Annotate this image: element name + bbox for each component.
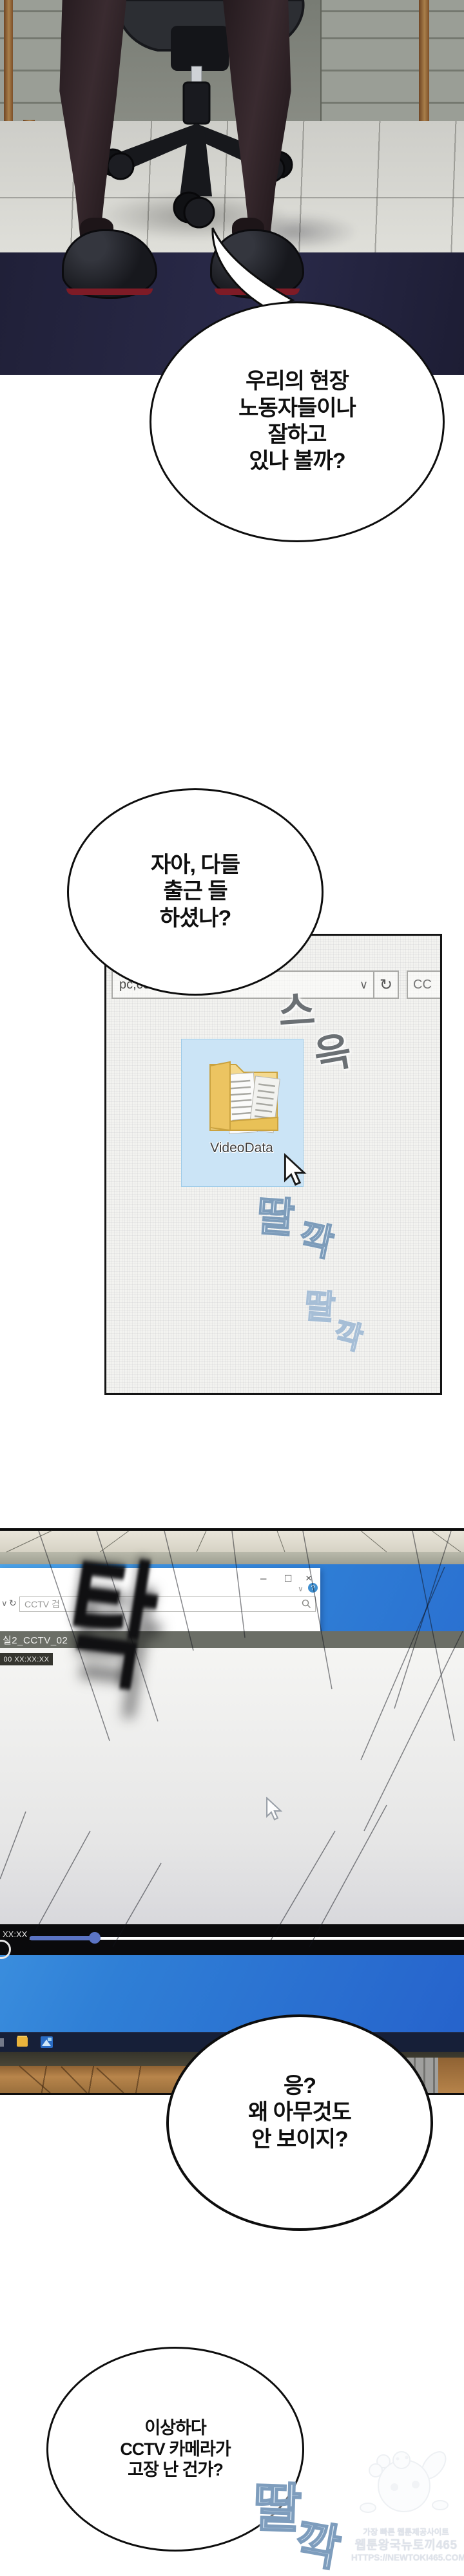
watermark-line3: HTTPS://NEWTOKI465.COM: [351, 2553, 461, 2564]
search-box-text: CC: [408, 978, 432, 992]
speech-bubble-2: 자아, 다들 출근 들 하셨나?: [67, 788, 324, 996]
sfx-slide-char: 스: [277, 990, 316, 1033]
refresh-icon: ↻: [380, 976, 392, 994]
wood-pillar-left: [4, 0, 13, 129]
speech-text-3: 응? 왜 아무것도 안 보이지?: [248, 2073, 351, 2172]
speech-bubble-3: 응? 왜 아무것도 안 보이지?: [166, 2014, 433, 2231]
mouse-cursor-icon: [266, 1797, 283, 1821]
webtoon-page: 우리의 현장 노동자들이나 잘하고 있나 볼까? pc,ce ∨ ↻ CC: [0, 0, 464, 2576]
sfx-click-char: 깍: [291, 2519, 344, 2575]
wood-pillar-right: [419, 0, 429, 132]
chevron-down-icon[interactable]: ∨: [360, 978, 368, 992]
speech-text-1: 우리의 현장 노동자들이나 잘하고 있나 볼까?: [238, 368, 356, 475]
refresh-button[interactable]: ↻: [373, 971, 399, 999]
site-watermark: 가장 빠른 웹툰제공사이트 웹툰왕국뉴토끼465 HTTPS://NEWTOKI…: [351, 2446, 461, 2572]
watermark-line2: 웹툰왕국뉴토끼465: [351, 2538, 461, 2553]
watermark-mascot: [358, 2446, 454, 2524]
speech-bubble-1: 우리의 현장 노동자들이나 잘하고 있나 볼까?: [150, 301, 445, 542]
sfx-click-char: 딸: [255, 1195, 296, 1239]
speech-text-4: 이상하다 CCTV 카메라가 고장 난 건가?: [120, 2418, 230, 2481]
file-explorer-window: pc,ce ∨ ↻ CC: [104, 934, 442, 1395]
sfx-slide-char: 윽: [311, 1032, 354, 1077]
watermark-line1: 가장 빠른 웹툰제공사이트: [351, 2528, 461, 2538]
mouse-cursor-icon: [283, 1153, 307, 1187]
sfx-click-char: 딸: [252, 2482, 302, 2537]
sfx-click-char: 딸: [303, 1289, 336, 1325]
folder-icon[interactable]: [194, 1045, 291, 1142]
search-box[interactable]: CC: [407, 971, 442, 999]
speech-text-2: 자아, 다들 출근 들 하셨나?: [151, 852, 240, 932]
